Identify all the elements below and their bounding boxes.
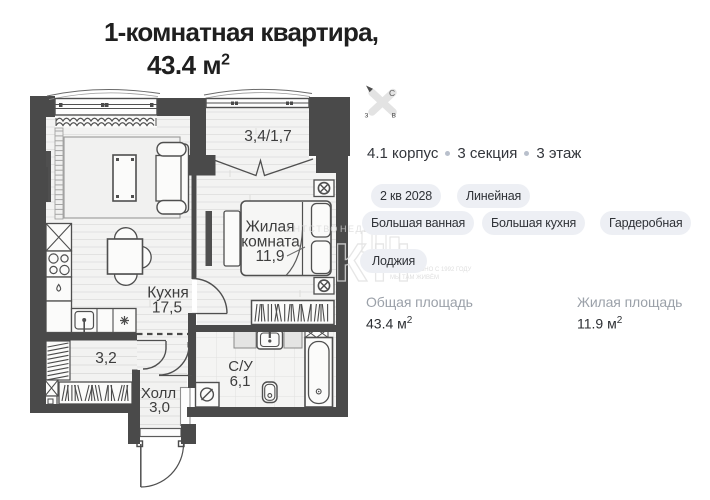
svg-text:11,9: 11,9 xyxy=(255,248,284,265)
svg-text:МЫ ТАМ ЖИВЁМ: МЫ ТАМ ЖИВЁМ xyxy=(390,274,439,281)
svg-text:ЕНТСТВО: ЕНТСТВО xyxy=(286,224,339,234)
svg-text:з: з xyxy=(365,110,369,120)
svg-text:6,1: 6,1 xyxy=(230,373,251,390)
svg-text:3,2: 3,2 xyxy=(95,350,117,367)
svg-text:17,5: 17,5 xyxy=(152,300,182,317)
svg-text:С: С xyxy=(389,88,395,98)
svg-text:в: в xyxy=(392,110,397,120)
svg-text:3,0: 3,0 xyxy=(149,399,170,416)
svg-text:3,4/1,7: 3,4/1,7 xyxy=(244,128,291,145)
